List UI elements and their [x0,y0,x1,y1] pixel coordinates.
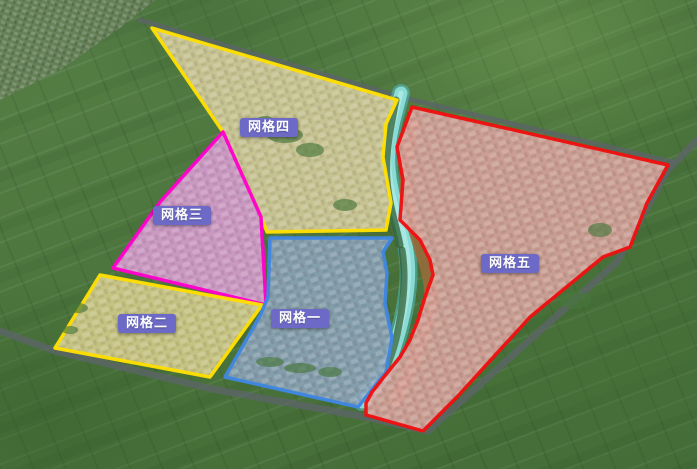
map-overlay-svg [0,0,697,469]
tree-clump [559,291,591,309]
tree-clump [588,223,612,237]
zone-label-grid-4: 网格四 [240,118,298,137]
tree-clump [256,357,284,367]
tree-clump [68,303,88,313]
aerial-map: 网格四 网格三 网格二 网格一 网格五 [0,0,697,469]
tree-clump [284,363,316,373]
tree-clump [296,143,324,157]
tree-clump [318,367,342,377]
zone-label-grid-5: 网格五 [481,254,539,273]
zone-label-grid-2: 网格二 [118,314,176,333]
zone-label-grid-1: 网格一 [271,309,329,328]
zone-label-grid-3: 网格三 [153,206,211,225]
village-texture [0,0,155,100]
ground-layer [0,0,155,100]
tree-clump [62,326,78,334]
tree-clump [333,199,357,211]
